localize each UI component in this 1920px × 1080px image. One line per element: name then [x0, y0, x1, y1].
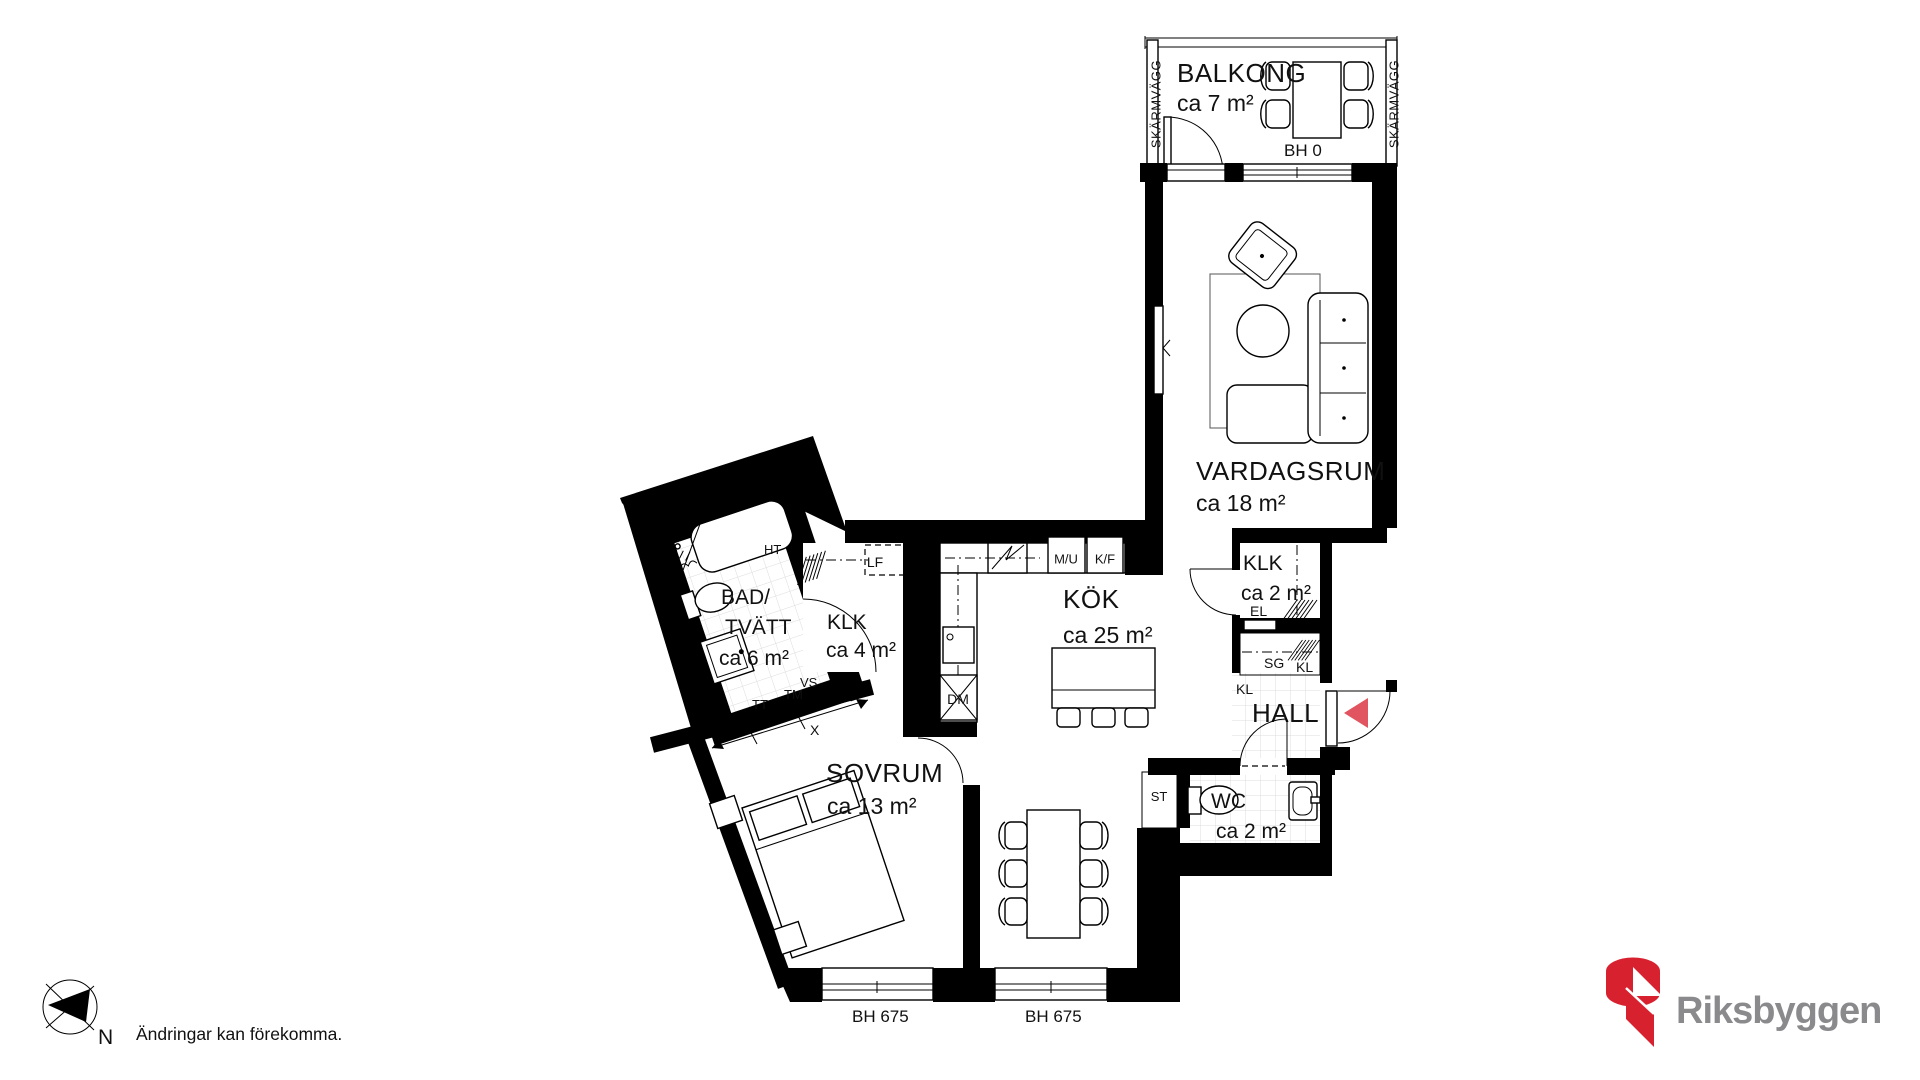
el-label: EL [1250, 603, 1267, 619]
electrical-cabinet [1244, 620, 1276, 630]
entrance-door-leaf [1326, 691, 1337, 746]
kitchen: M/U K/F DM KÖK ca 25 m² [918, 537, 1155, 938]
room-area-klk4: ca 4 m² [826, 639, 896, 662]
floorplan-page: SKÄRMVÄGG SKÄRMVÄGG BALKONG ca 7 m² BH 0 [0, 0, 1920, 1080]
room-area-wc: ca 2 m² [1216, 820, 1286, 843]
room-label-balkong: BALKONG [1177, 58, 1306, 88]
room-label-vardagsrum: VARDAGSRUM [1196, 456, 1385, 486]
window-label-bh0: BH 0 [1284, 141, 1322, 160]
riksbyggen-wordmark: Riksbyggen [1676, 990, 1881, 1032]
room-label-hall: HALL [1252, 698, 1319, 728]
room-area-sovrum: ca 13 m² [827, 793, 917, 819]
room-area-kok: ca 25 m² [1063, 622, 1153, 648]
klk-small-door-arc [1190, 569, 1236, 615]
window-label-bh675-sovrum: BH 675 [852, 1007, 909, 1026]
coffee-table [1237, 305, 1289, 357]
sink [943, 627, 974, 663]
room-area-klk2: ca 2 m² [1241, 582, 1311, 605]
armchair [1225, 218, 1300, 292]
entrance-door [1326, 691, 1390, 746]
clothes-rail-icon [1288, 640, 1319, 660]
dim-x-label: X [810, 722, 820, 738]
screen-wall-left-label: SKÄRMVÄGG [1148, 60, 1163, 148]
balcony: SKÄRMVÄGG SKÄRMVÄGG BALKONG ca 7 m² BH 0 [1145, 36, 1401, 173]
living-room: VARDAGSRUM ca 18 m² [1154, 218, 1385, 516]
lf-label: LF [867, 554, 883, 570]
room-area-vardagsrum: ca 18 m² [1196, 490, 1286, 516]
kitchen-island [1052, 648, 1155, 727]
screen-wall-right-label: SKÄRMVÄGG [1386, 60, 1401, 148]
entrance-arrow-icon [1344, 698, 1368, 728]
room-label-kok: KÖK [1063, 584, 1120, 614]
room-label-tvatt: TVÄTT [725, 616, 792, 639]
vent-icon [1163, 340, 1170, 356]
wc-sink [1289, 782, 1320, 820]
room-area-balkong: ca 7 m² [1177, 90, 1254, 116]
floorplan-drawing: SKÄRMVÄGG SKÄRMVÄGG BALKONG ca 7 m² BH 0 [0, 0, 1920, 1080]
compass-icon [43, 980, 97, 1034]
riksbyggen-logo: Riksbyggen [1606, 958, 1881, 1048]
ht-label: HT [764, 542, 781, 557]
riksbyggen-logo-icon [1606, 958, 1662, 1048]
kf-label: K/F [1095, 551, 1115, 566]
window-label-bh675-kok: BH 675 [1025, 1007, 1082, 1026]
dm-label: DM [947, 691, 969, 707]
dining-set [999, 810, 1108, 938]
kl-label-a: KL [1296, 659, 1313, 675]
room-label-klk2: KLK [1243, 552, 1283, 575]
st-label: ST [1151, 789, 1168, 804]
room-area-bad: ca 6 m² [719, 647, 789, 670]
disclaimer-text: Ändringar kan förekomma. [136, 1024, 342, 1044]
room-label-sovrum: SOVRUM [826, 758, 943, 788]
kl-label-b: KL [1236, 681, 1253, 697]
mu-label: M/U [1054, 551, 1078, 566]
room-label-wc: WC [1211, 790, 1246, 813]
tt-label: TT [752, 697, 768, 712]
living-room-window [1154, 306, 1163, 394]
compass-north-label: N [98, 1026, 113, 1049]
room-label-klk4: KLK [827, 611, 867, 634]
room-label-bad: BAD/ [721, 586, 770, 609]
sg-label: SG [1264, 655, 1284, 671]
tm-label: TM [784, 687, 803, 702]
